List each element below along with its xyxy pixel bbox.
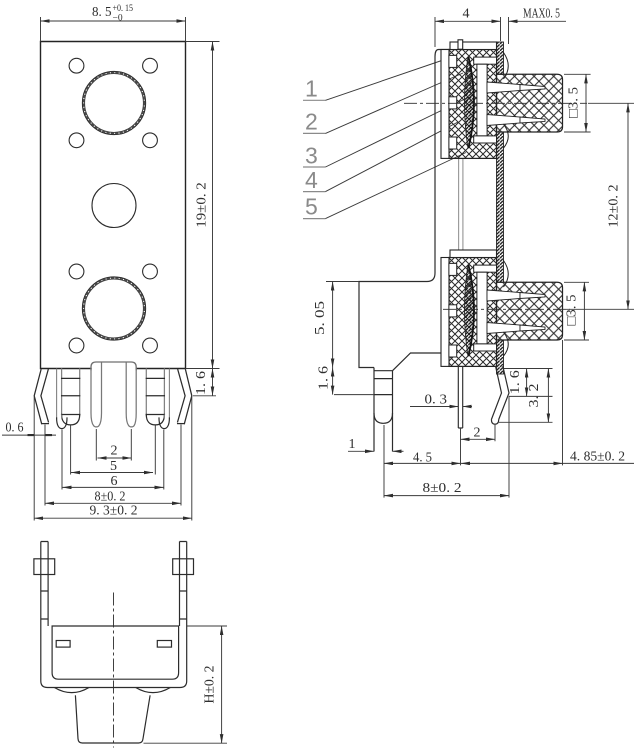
svg-text:6: 6 — [111, 474, 118, 489]
svg-text:2: 2 — [474, 426, 481, 441]
svg-text:3: 3 — [305, 143, 318, 169]
svg-text:8. 5: 8. 5 — [92, 5, 112, 20]
svg-text:19±0. 2: 19±0. 2 — [195, 182, 210, 228]
svg-text:4. 85±0. 2: 4. 85±0. 2 — [570, 450, 625, 465]
svg-text:2: 2 — [305, 109, 318, 135]
svg-text:1. 6: 1. 6 — [194, 371, 209, 395]
svg-text:1. 6: 1. 6 — [508, 370, 523, 394]
svg-text:8±0. 2: 8±0. 2 — [423, 481, 462, 496]
svg-text:−0: −0 — [113, 14, 123, 24]
svg-text:4: 4 — [305, 167, 318, 193]
svg-text:3. 2: 3. 2 — [527, 384, 542, 408]
svg-text:MAX0. 5: MAX0. 5 — [523, 7, 560, 22]
svg-text:□3. 5: □3. 5 — [565, 295, 580, 326]
svg-text:5: 5 — [305, 194, 318, 220]
svg-text:1: 1 — [305, 76, 318, 102]
svg-text:2: 2 — [111, 444, 118, 459]
svg-text:5. 05: 5. 05 — [313, 301, 328, 335]
svg-text:+0. 15: +0. 15 — [113, 4, 134, 14]
svg-text:4. 5: 4. 5 — [413, 450, 432, 465]
svg-text:9. 3±0. 2: 9. 3±0. 2 — [90, 504, 138, 519]
svg-text:8±0. 2: 8±0. 2 — [95, 489, 126, 504]
svg-text:1: 1 — [349, 437, 356, 452]
svg-text:12±0. 2: 12±0. 2 — [607, 185, 622, 228]
svg-text:0. 3: 0. 3 — [425, 393, 448, 408]
svg-text:H±0. 2: H±0. 2 — [203, 666, 218, 704]
svg-text:0. 6: 0. 6 — [6, 421, 24, 436]
svg-text:4: 4 — [463, 7, 470, 22]
svg-text:1. 6: 1. 6 — [317, 366, 332, 390]
svg-text:□3. 5: □3. 5 — [567, 87, 582, 118]
svg-text:5: 5 — [110, 459, 117, 474]
